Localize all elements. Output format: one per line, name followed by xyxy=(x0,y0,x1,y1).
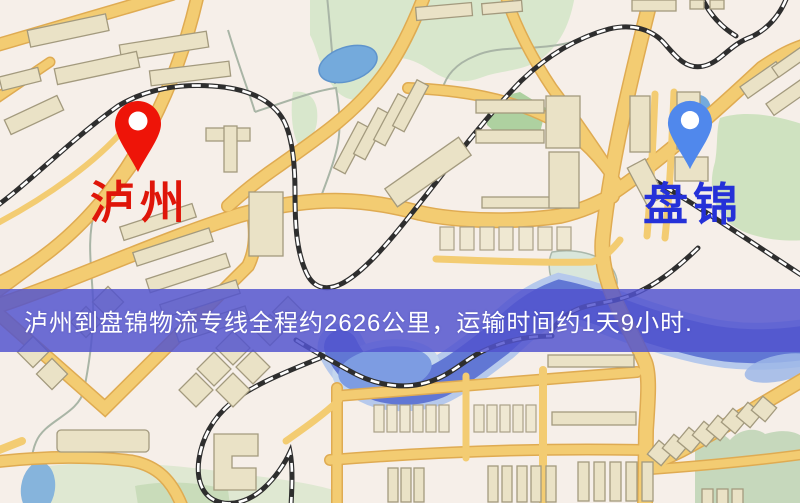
origin-label: 泸州 xyxy=(90,176,190,229)
map-graphic: 泸州 盘锦 xyxy=(0,0,800,503)
origin-marker: 泸州 xyxy=(90,101,190,229)
route-info-text: 泸州到盘锦物流专线全程约2626公里，运输时间约1天9小时. xyxy=(0,303,693,338)
route-info-banner: 泸州到盘锦物流专线全程约2626公里，运输时间约1天9小时. xyxy=(0,289,800,352)
map-canvas: 泸州 盘锦 泸州到盘锦物流专线全程约2626公里，运输时间约1天9小时. xyxy=(0,0,800,503)
destination-label: 盘锦 xyxy=(643,178,743,231)
